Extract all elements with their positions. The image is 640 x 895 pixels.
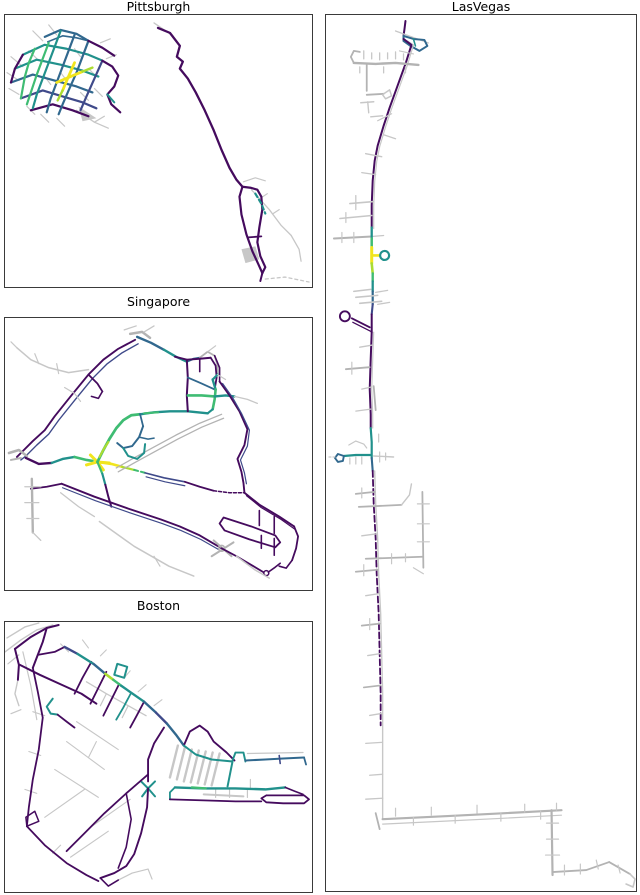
lasvegas-title: LasVegas (325, 0, 637, 14)
boston-panel (4, 621, 313, 893)
pittsburgh-panel (4, 14, 313, 288)
boston-map (5, 622, 312, 892)
lasvegas-map (326, 15, 636, 891)
singapore-panel (4, 317, 313, 591)
pittsburgh-title: Pittsburgh (4, 0, 313, 14)
singapore-title: Singapore (4, 295, 313, 309)
lasvegas-panel (325, 14, 637, 892)
road-network-figure: Pittsburgh Singapore Boston LasVegas (0, 0, 640, 895)
singapore-map (5, 318, 312, 590)
boston-title: Boston (4, 599, 313, 613)
pittsburgh-map (5, 15, 312, 287)
